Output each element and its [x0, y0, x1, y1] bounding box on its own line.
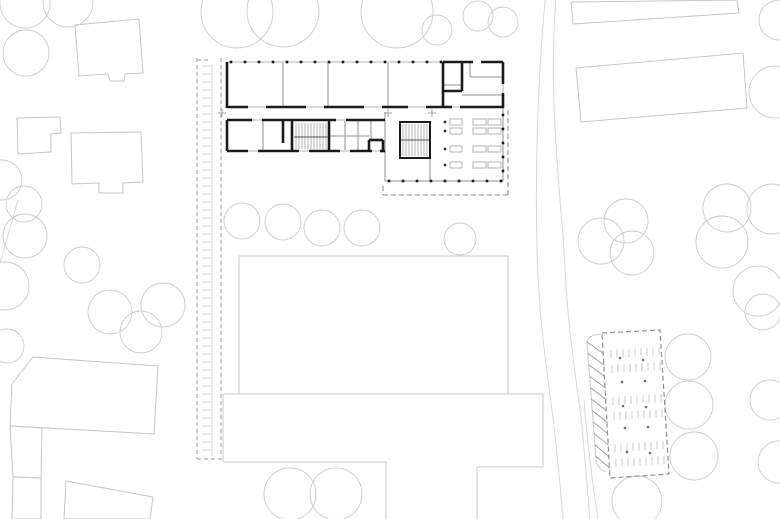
facade-post [486, 180, 489, 183]
site-plan [0, 0, 780, 519]
facade-post [502, 170, 505, 173]
facade-post [402, 180, 405, 183]
facade-post [502, 142, 505, 145]
facade-post [230, 61, 233, 64]
neighbor-building [10, 357, 158, 434]
facade-post [472, 180, 475, 183]
facade-post [244, 61, 247, 64]
facade-post [502, 156, 505, 159]
furniture-table [473, 162, 486, 168]
facade-post [444, 180, 447, 183]
sports-field [239, 256, 508, 394]
furniture-table [450, 162, 462, 168]
furniture-table [488, 119, 501, 125]
parking-tree-dot [645, 406, 648, 409]
parking-tree-dot [621, 381, 624, 384]
furniture-table [450, 119, 462, 125]
facade-post [412, 61, 415, 64]
facade-post [328, 61, 331, 64]
parking-tree-dot [647, 426, 650, 429]
facade-post [430, 180, 433, 183]
facade-post [300, 61, 303, 64]
furniture-table [488, 162, 501, 168]
furniture-table [488, 146, 501, 152]
facade-post [384, 61, 387, 64]
parking-tree-dot [642, 359, 645, 362]
parking-tree-dot [624, 427, 627, 430]
facade-post [458, 180, 461, 183]
parking-tree-dot [622, 405, 625, 408]
parking-tree-dot [626, 451, 629, 454]
column-dot [444, 164, 447, 167]
facade-post [342, 61, 345, 64]
facade-post [440, 61, 443, 64]
neighbor-building [12, 477, 41, 519]
furniture-table [450, 128, 462, 134]
facade-post [502, 114, 505, 117]
parking-tree-dot [619, 357, 622, 360]
furniture-table [473, 146, 486, 152]
neighbor-building [10, 426, 42, 478]
furniture-table [450, 146, 462, 152]
facade-post [398, 61, 401, 64]
facade-post [500, 180, 503, 183]
neighbor-building [75, 19, 143, 81]
facade-post [370, 61, 373, 64]
facade-post [286, 61, 289, 64]
facade-post [258, 61, 261, 64]
facade-post [314, 61, 317, 64]
facade-post [272, 61, 275, 64]
facade-post [502, 128, 505, 131]
furniture-table [473, 119, 486, 125]
parking-tree-dot [649, 452, 652, 455]
site-plan-drawing [0, 0, 780, 519]
facade-post [388, 180, 391, 183]
furniture-table [488, 128, 501, 134]
column-dot [444, 130, 447, 133]
furniture-table [473, 128, 486, 134]
column-dot [444, 121, 447, 124]
facade-post [416, 180, 419, 183]
facade-post [426, 61, 429, 64]
parking-tree-dot [644, 380, 647, 383]
facade-post [356, 61, 359, 64]
column-dot [444, 148, 447, 151]
